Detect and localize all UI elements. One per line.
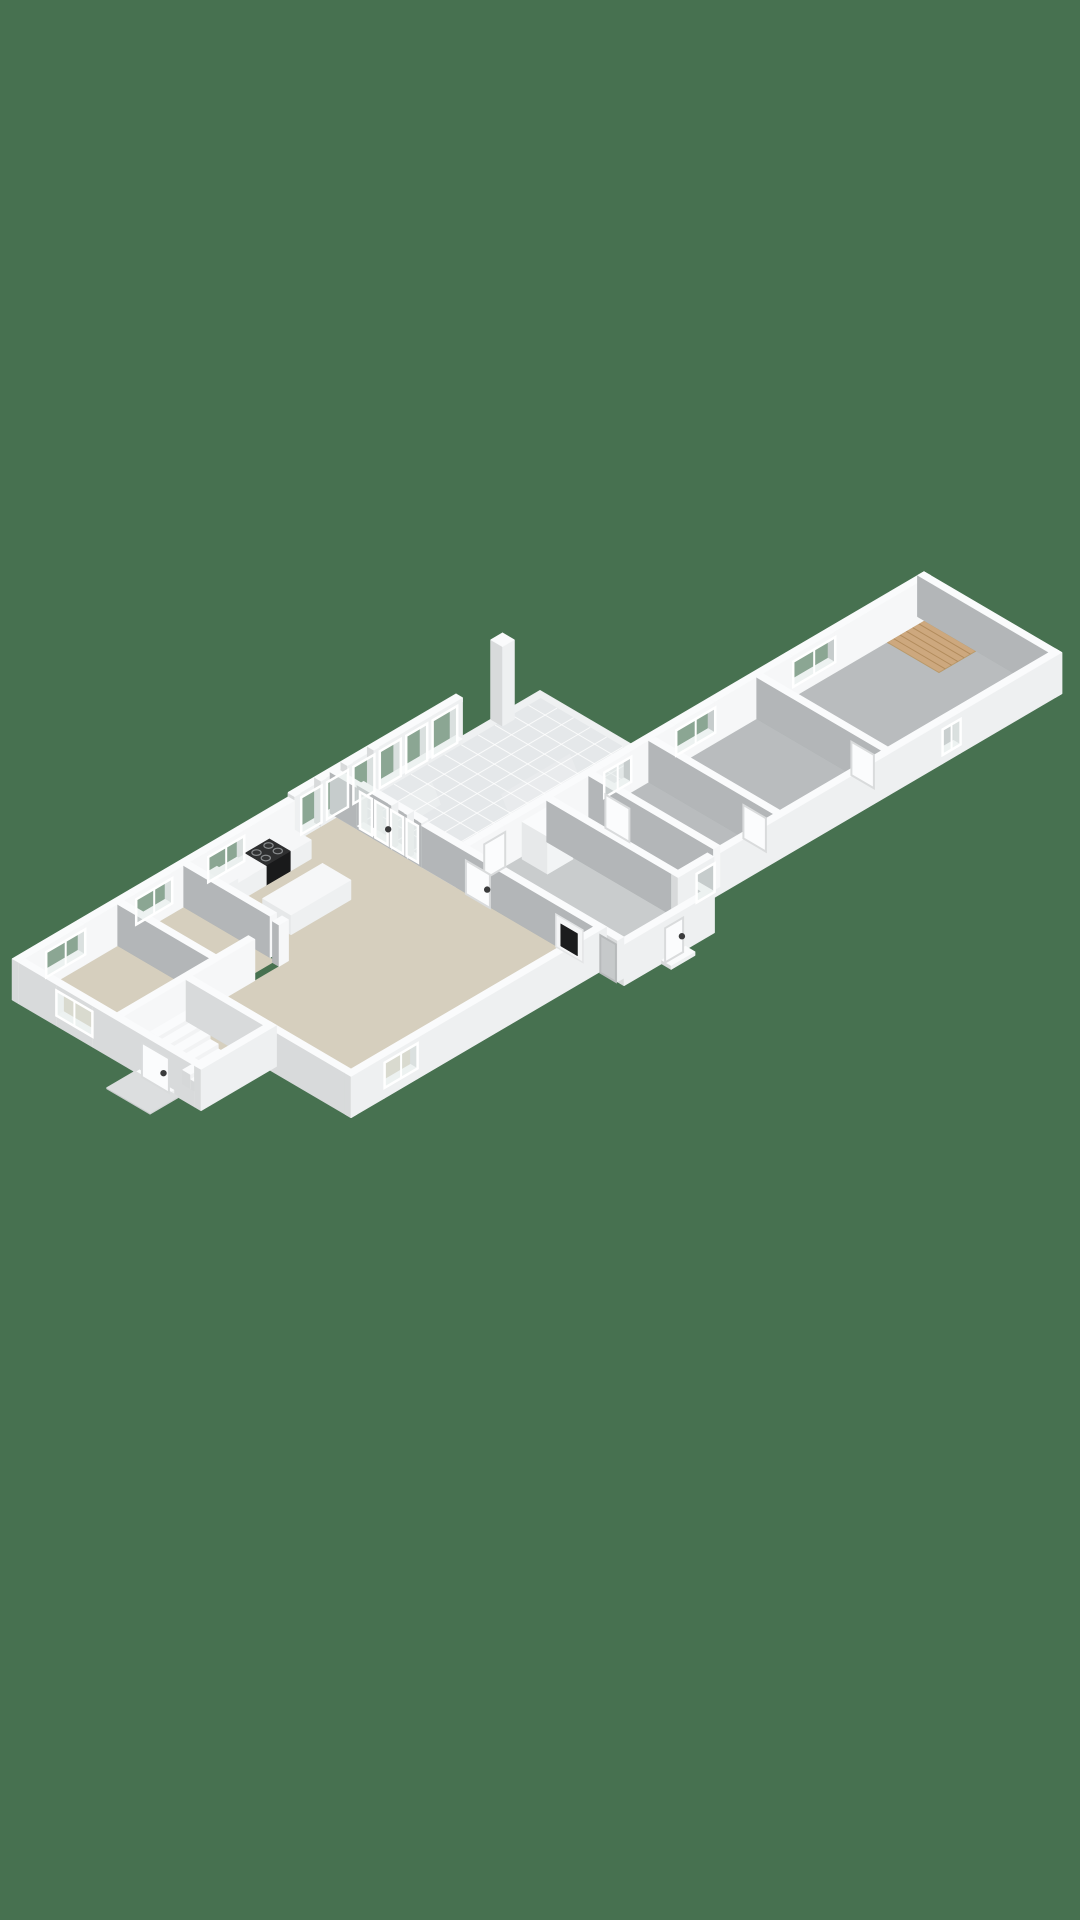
french-pane-3 (391, 810, 403, 854)
stove-burners-1 (252, 850, 261, 856)
french-pane-4 (407, 819, 418, 862)
chimney-pillar-west-face (491, 640, 503, 727)
french-pane-1 (360, 792, 372, 836)
wall-living-se-1-west-face (344, 1073, 351, 1118)
living-utility-door-handle (484, 886, 490, 892)
chimney-pillar-south-face (503, 640, 515, 727)
stove-burners-4 (273, 848, 282, 854)
wall-entry-se-west-face (194, 1066, 201, 1111)
wall-utility-sw-south-face (617, 937, 624, 982)
floorplan-3d-render (0, 0, 1080, 1920)
wall-nw-1-west-face (12, 959, 19, 1004)
stove-burners-2 (264, 843, 273, 849)
french-door-handle (385, 826, 391, 832)
front-door-handle (160, 1070, 166, 1076)
floorplan-canvas (0, 0, 1080, 1920)
wall-mid-2-west-face (272, 921, 279, 966)
utility-se-door-handle (679, 933, 685, 939)
stove-burners-3 (261, 855, 270, 861)
garage-panel-door (600, 935, 616, 982)
french-pane-2 (375, 801, 387, 845)
wall-mid-2-south-face (279, 920, 289, 967)
